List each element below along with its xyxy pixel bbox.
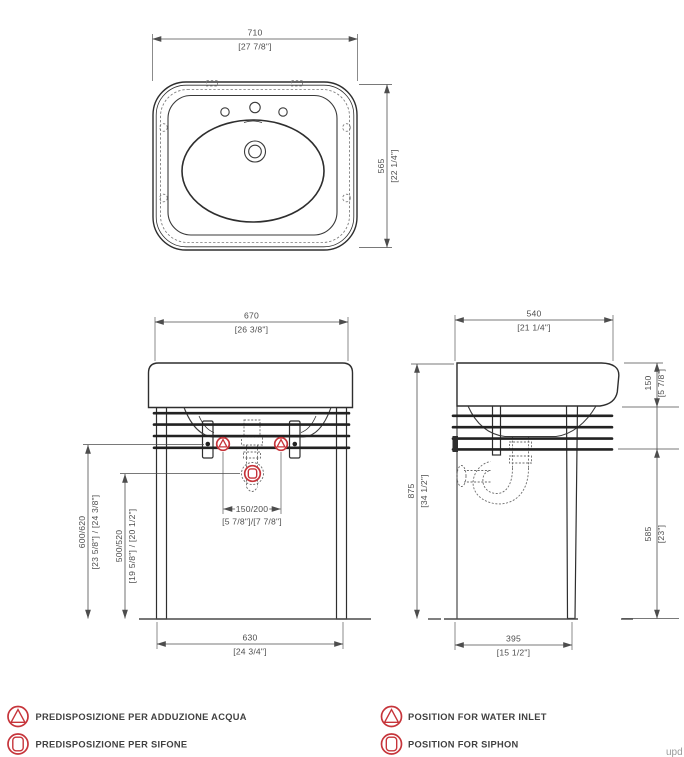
legend-item-water-inlet-it: PREDISPOSIZIONE PER ADDUZIONE ACQUA: [8, 707, 247, 727]
dim-front-base-width-mm: 630: [243, 633, 258, 643]
side-view-console: 540 [21 1/4"] 875 [34 1/2"] 150 [5 7/8"]…: [406, 309, 679, 658]
dim-siphon-height-mm: 500/520: [114, 530, 124, 562]
side-leg: [567, 404, 578, 619]
legend-item-water-inlet-en: POSITION FOR WATER INLET: [382, 707, 547, 727]
dim-side-base-depth: 395 [15 1/2"]: [455, 622, 572, 658]
dim-basin-height: 150 [5 7/8"]: [622, 363, 679, 407]
water-inlet-icon: [8, 707, 28, 727]
watermark-text: upd: [666, 747, 683, 757]
front-leg-left: [157, 408, 167, 620]
dim-top-depth: 565 [22 1/4"]: [359, 85, 399, 248]
front-basin: [149, 363, 353, 408]
basin-bowl-outline: [182, 120, 324, 222]
water-inlet-icon: [217, 438, 230, 451]
dim-total-height-mm: 875: [406, 484, 416, 499]
technical-drawing-canvas: 710 [27 7/8"] 565 [22 1/4"]: [0, 0, 684, 757]
dim-front-base-width-in: [24 3/4"]: [233, 647, 267, 657]
dim-leg-height-in: [23"]: [656, 525, 666, 543]
siphon-icon: [382, 734, 402, 754]
front-leg-right: [337, 408, 347, 620]
dim-top-width-mm: 710: [248, 28, 263, 38]
legend-label: PREDISPOSIZIONE PER ADDUZIONE ACQUA: [36, 712, 247, 722]
dim-leg-height-mm: 585: [643, 527, 653, 542]
legend-label: PREDISPOSIZIONE PER SIFONE: [36, 740, 188, 750]
faucet-hole-left: [221, 108, 229, 116]
dim-basin-height-mm: 150: [643, 376, 653, 391]
legend-label: POSITION FOR WATER INLET: [408, 712, 547, 722]
faucet-hole-right: [279, 108, 287, 116]
dim-front-base-width: 630 [24 3/4"]: [157, 622, 343, 657]
dim-top-width-in: [27 7/8"]: [238, 42, 272, 52]
wall-bracket-right: [290, 421, 301, 458]
legend-item-siphon-en: POSITION FOR SIPHON: [382, 734, 519, 754]
dim-side-depth-mm: 540: [527, 309, 542, 319]
wall-bracket-left: [203, 421, 214, 458]
dim-front-width-in: [26 3/8"]: [235, 325, 269, 335]
dim-total-height: 875 [34 1/2"]: [406, 364, 454, 619]
siphon-icon: [242, 463, 264, 485]
dim-inlet-spacing: 150/200 [5 7/8"]/[7 7/8"]: [222, 452, 282, 527]
drain-hole: [245, 141, 266, 162]
dim-side-depth-in: [21 1/4"]: [517, 323, 551, 333]
legend-label: POSITION FOR SIPHON: [408, 740, 519, 750]
dim-side-depth: 540 [21 1/4"]: [455, 309, 613, 362]
water-inlet-icon: [275, 438, 288, 451]
front-view-console: 670 [26 3/8"] 630 [24 3/4"] 600/620 [23 …: [77, 311, 353, 657]
dim-front-width-mm: 670: [244, 311, 259, 321]
dim-siphon-height: 500/520 [19 5/8"] / [20 1/2"]: [114, 474, 240, 619]
dim-top-width: 710 [27 7/8"]: [153, 28, 358, 82]
side-basin: [457, 363, 619, 406]
dim-side-base-depth-mm: 395: [506, 634, 521, 644]
dim-leg-height: 585 [23"]: [618, 407, 679, 619]
siphon-icon: [8, 734, 28, 754]
dim-top-depth-mm: 565: [376, 159, 386, 174]
dim-inlet-spacing-mm: 150/200: [236, 504, 268, 514]
dim-inlet-height-mm: 600/620: [77, 516, 87, 548]
dim-basin-height-in: [5 7/8"]: [656, 369, 666, 398]
legend: PREDISPOSIZIONE PER ADDUZIONE ACQUA PRED…: [8, 707, 547, 755]
dim-top-depth-in: [22 1/4"]: [389, 149, 399, 183]
water-inlet-icon: [382, 707, 402, 727]
dim-total-height-in: [34 1/2"]: [419, 474, 429, 508]
dim-siphon-height-in: [19 5/8"] / [20 1/2"]: [127, 509, 137, 584]
dim-inlet-spacing-in: [5 7/8"]/[7 7/8"]: [222, 517, 282, 527]
dim-inlet-height: 600/620 [23 5/8"] / [24 3/8"]: [77, 445, 204, 619]
top-view-washbasin: 710 [27 7/8"] 565 [22 1/4"]: [153, 28, 400, 251]
faucet-hole-center: [250, 102, 260, 112]
side-rail-post: [493, 404, 501, 455]
dim-inlet-height-in: [23 5/8"] / [24 3/8"]: [90, 495, 100, 570]
technical-drawing-page: 710 [27 7/8"] 565 [22 1/4"]: [0, 0, 684, 757]
dim-side-base-depth-in: [15 1/2"]: [497, 648, 531, 658]
legend-item-siphon-it: PREDISPOSIZIONE PER SIFONE: [8, 734, 187, 754]
dim-front-width: 670 [26 3/8"]: [155, 311, 348, 362]
